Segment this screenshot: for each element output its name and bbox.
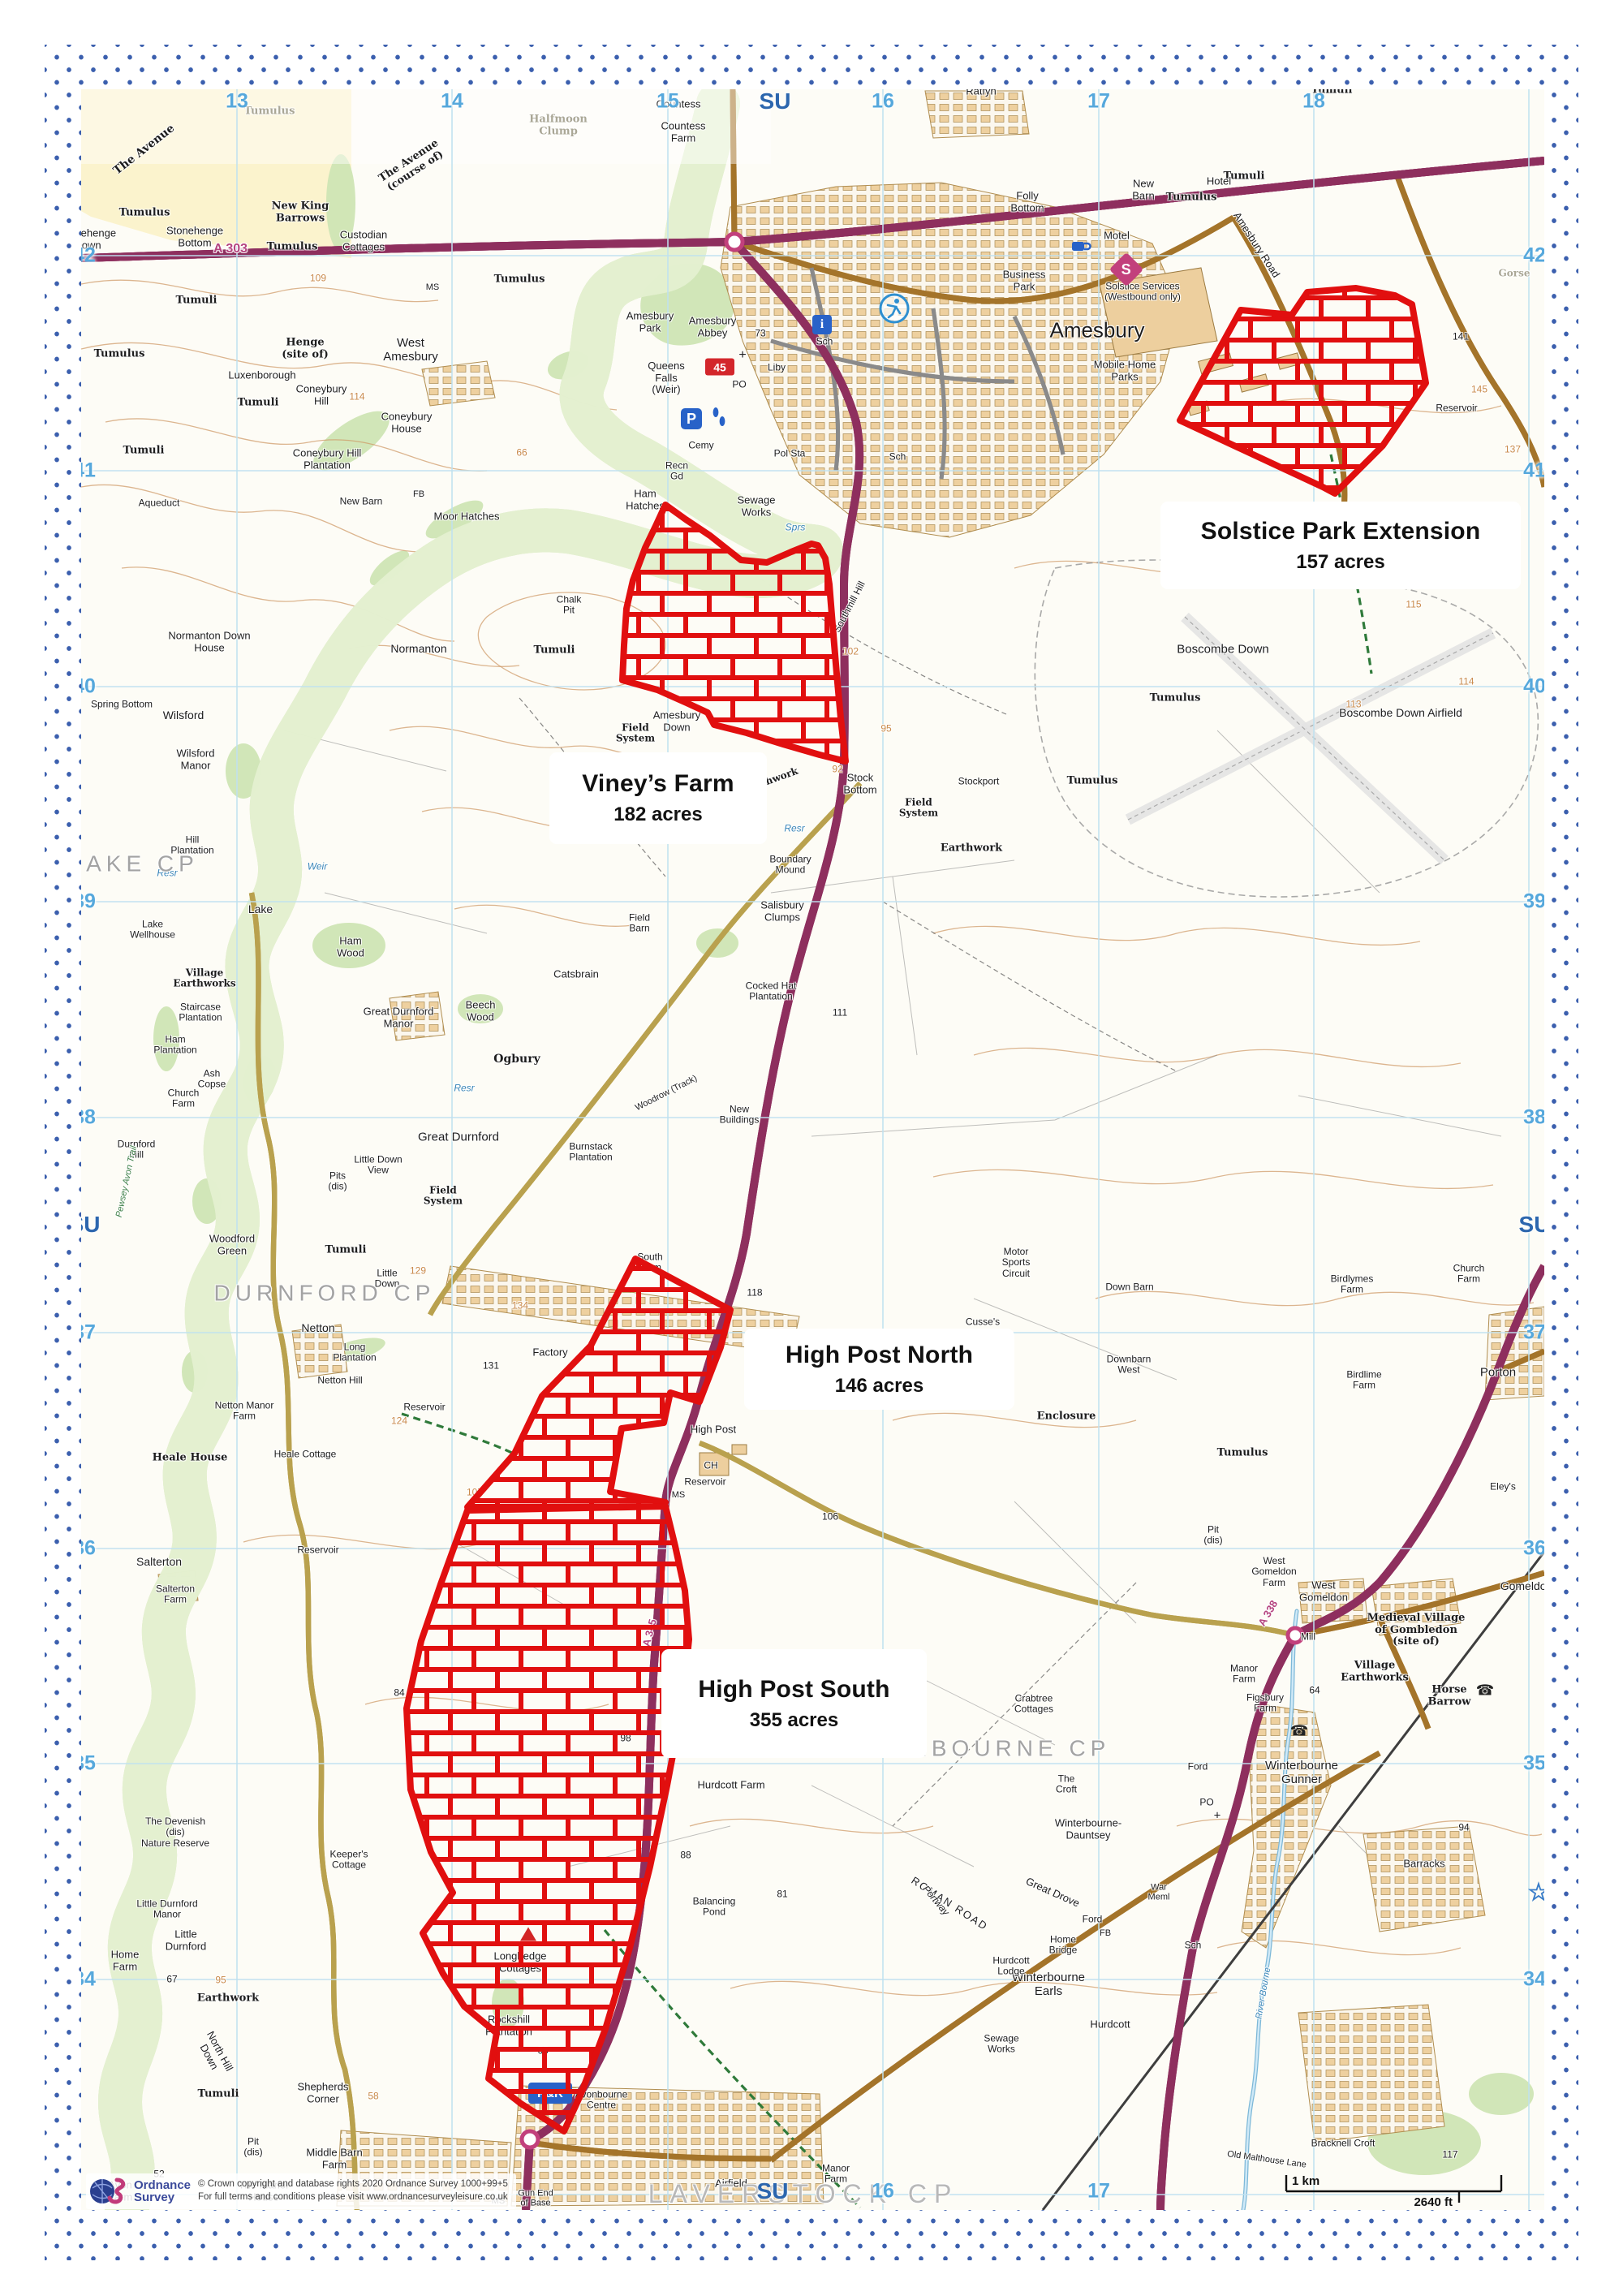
ordnance-survey-logo xyxy=(89,2175,127,2208)
parcel-area-high-post-south xyxy=(407,1506,689,2131)
parcel-label-high-post-south: High Post South 355 acres xyxy=(661,1649,927,1758)
scale-bar: 1 km 2640 ft xyxy=(1281,2169,1532,2210)
parcel-label-solstice-park-extension: Solstice Park Extension 157 acres xyxy=(1160,502,1521,589)
copyright-line2: For full terms and conditions please vis… xyxy=(198,2191,508,2204)
parcel-area-high-post-north xyxy=(467,1259,730,1507)
parcel-title: Viney’s Farm xyxy=(582,770,734,798)
parcel-label-vineys-farm: Viney’s Farm 182 acres xyxy=(549,752,767,844)
parcel-title: High Post South xyxy=(698,1676,889,1704)
parcel-title: High Post North xyxy=(786,1342,973,1369)
parcel-overlay xyxy=(81,89,1544,2210)
scale-ft-label: 2640 ft xyxy=(1414,2195,1453,2209)
os-publisher-name: Ordnance Survey xyxy=(134,2179,191,2204)
parcel-title: Solstice Park Extension xyxy=(1201,518,1481,545)
copyright-line1: © Crown copyright and database rights 20… xyxy=(198,2178,508,2191)
parcel-acreage: 182 acres xyxy=(613,803,702,826)
copyright-text: © Crown copyright and database rights 20… xyxy=(198,2178,508,2203)
parcel-acreage: 146 acres xyxy=(835,1375,923,1398)
parcel-acreage: 157 acres xyxy=(1296,551,1384,574)
map-canvas: The AvenueTumulusHalfmoon ClumpTumulusSt… xyxy=(81,89,1544,2210)
os-credit: Ordnance Survey © Crown copyright and da… xyxy=(86,2173,516,2209)
scale-km-label: 1 km xyxy=(1292,2174,1319,2188)
parcel-area-vineys-farm xyxy=(622,505,846,761)
os-map-page: The AvenueTumulusHalfmoon ClumpTumulusSt… xyxy=(0,0,1623,2296)
parcel-label-high-post-north: High Post North 146 acres xyxy=(744,1329,1014,1410)
parcel-acreage: 355 acres xyxy=(750,1709,838,1732)
parcel-area-solstice-park-extension xyxy=(1180,288,1426,493)
